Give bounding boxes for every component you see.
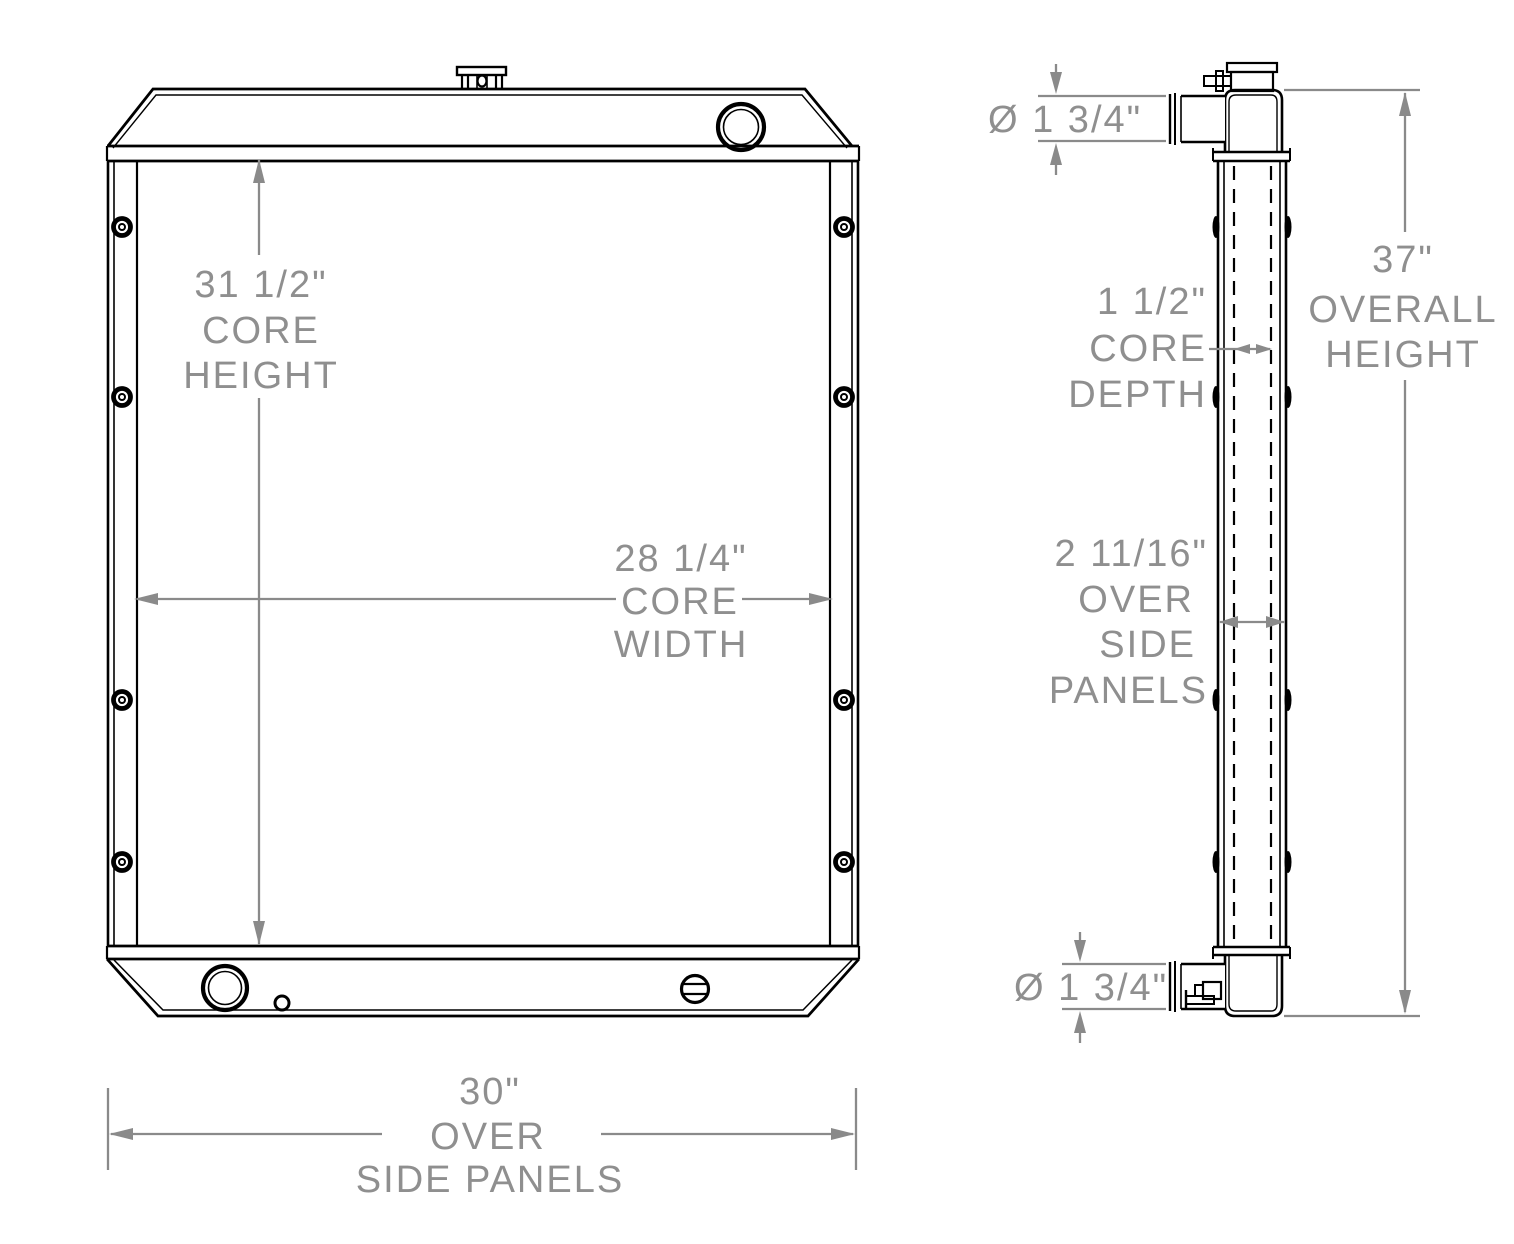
bolt [114,692,131,709]
overall-width-label-1: OVER [430,1116,546,1158]
overall-depth-value: 2 11/16" [1055,533,1208,575]
overall-depth-label-3: PANELS [1049,670,1208,712]
bolt [114,389,131,406]
arrow-left-icon [109,1128,133,1140]
dim-overall-height: 37" OVERALL HEIGHT [1284,90,1498,1016]
overall-height-label-1: OVERALL [1308,289,1497,331]
bottom-tank [107,946,859,1016]
arrow-left-icon [1234,344,1250,354]
side-inlet-pipe [1170,93,1225,145]
bolt [836,854,853,871]
dim-overall-width: 30" OVER SIDE PANELS [108,1071,856,1201]
overall-depth-label-1: OVER [1078,579,1194,621]
bolt [836,219,853,236]
filler-cap-body [1231,72,1273,91]
arrow-down-icon [253,921,265,945]
overall-depth-label-2: SIDE [1099,624,1196,666]
arrow-right-icon [1256,344,1272,354]
core-depth-value: 1 1/2" [1097,281,1207,323]
inlet-port-outer-ring [718,104,764,150]
core-width-value: 28 1/4" [614,538,747,580]
core-width-label-1: CORE [621,581,739,623]
filler-cap-top [1227,63,1277,72]
outlet-port-inner-ring [209,972,242,1005]
filler-neck [457,67,506,90]
bolt [836,692,853,709]
side-top-tank [1170,63,1290,161]
spout-ring [1216,71,1223,91]
core-width-label-2: WIDTH [614,624,749,666]
overall-width-label-2: SIDE PANELS [356,1159,624,1201]
radiator-drawing: 31 1/2" CORE HEIGHT 28 1/4" CORE WIDTH 3… [0,0,1514,1244]
core-depth-label-1: CORE [1089,328,1207,370]
arrow-up-icon [1074,1011,1086,1033]
overall-height-label-2: HEIGHT [1325,334,1481,376]
bolt [114,854,131,871]
core-depth-label-2: DEPTH [1068,374,1207,416]
side-bottom-tank [1170,947,1290,1016]
arrow-down-icon [1074,940,1086,962]
dim-core-height: 31 1/2" CORE HEIGHT [183,159,339,945]
arrow-up-icon [1399,92,1411,116]
side-top-tank-inner [1229,95,1277,152]
top-tank [107,67,859,161]
side-filler-cap [1204,63,1277,91]
arrow-right-icon [831,1128,855,1140]
outlet-diameter-value: Ø 1 3/4" [1014,967,1168,1009]
arrow-up-icon [253,159,265,183]
inlet-port-inner-ring [724,110,759,145]
inlet-diameter-value: Ø 1 3/4" [988,99,1142,141]
top-tank-outline [108,89,852,146]
side-bottom-tank-inner [1229,955,1277,1011]
dim-core-depth: 1 1/2" CORE DEPTH [1068,281,1272,416]
drawing-canvas: 31 1/2" CORE HEIGHT 28 1/4" CORE WIDTH 3… [0,0,1514,1244]
outlet-port-outer-ring [203,966,247,1010]
core-height-value: 31 1/2" [194,264,327,306]
arrow-down-icon [1399,990,1411,1014]
drain-plug [682,976,709,1003]
overall-height-value: 37" [1372,239,1434,281]
side-top-tank-outline [1225,90,1282,152]
core-height-label-1: CORE [202,310,320,352]
arrow-up-icon [1050,143,1062,165]
filler-vent-hole [478,76,487,87]
dim-inlet-diameter: Ø 1 3/4" [988,64,1166,175]
side-core [1213,161,1292,946]
side-bottom-tank-outline [1225,955,1282,1016]
overall-width-value: 30" [459,1071,521,1113]
bolt [836,389,853,406]
bolt [114,219,131,236]
dim-overall-depth: 2 11/16" OVER SIDE PANELS [1049,533,1285,712]
overflow-spout [1204,76,1231,86]
arrow-left-icon [1219,616,1238,628]
arrow-right-icon [1266,616,1285,628]
dim-outlet-diameter: Ø 1 3/4" [1014,932,1168,1043]
core-height-label-2: HEIGHT [183,355,339,397]
dim-core-width: 28 1/4" CORE WIDTH [134,538,833,666]
small-drain-hole [275,996,289,1010]
outlet-port [203,966,247,1010]
inlet-port [718,104,764,150]
arrow-down-icon [1050,72,1062,94]
filler-cap-bar [457,67,506,75]
